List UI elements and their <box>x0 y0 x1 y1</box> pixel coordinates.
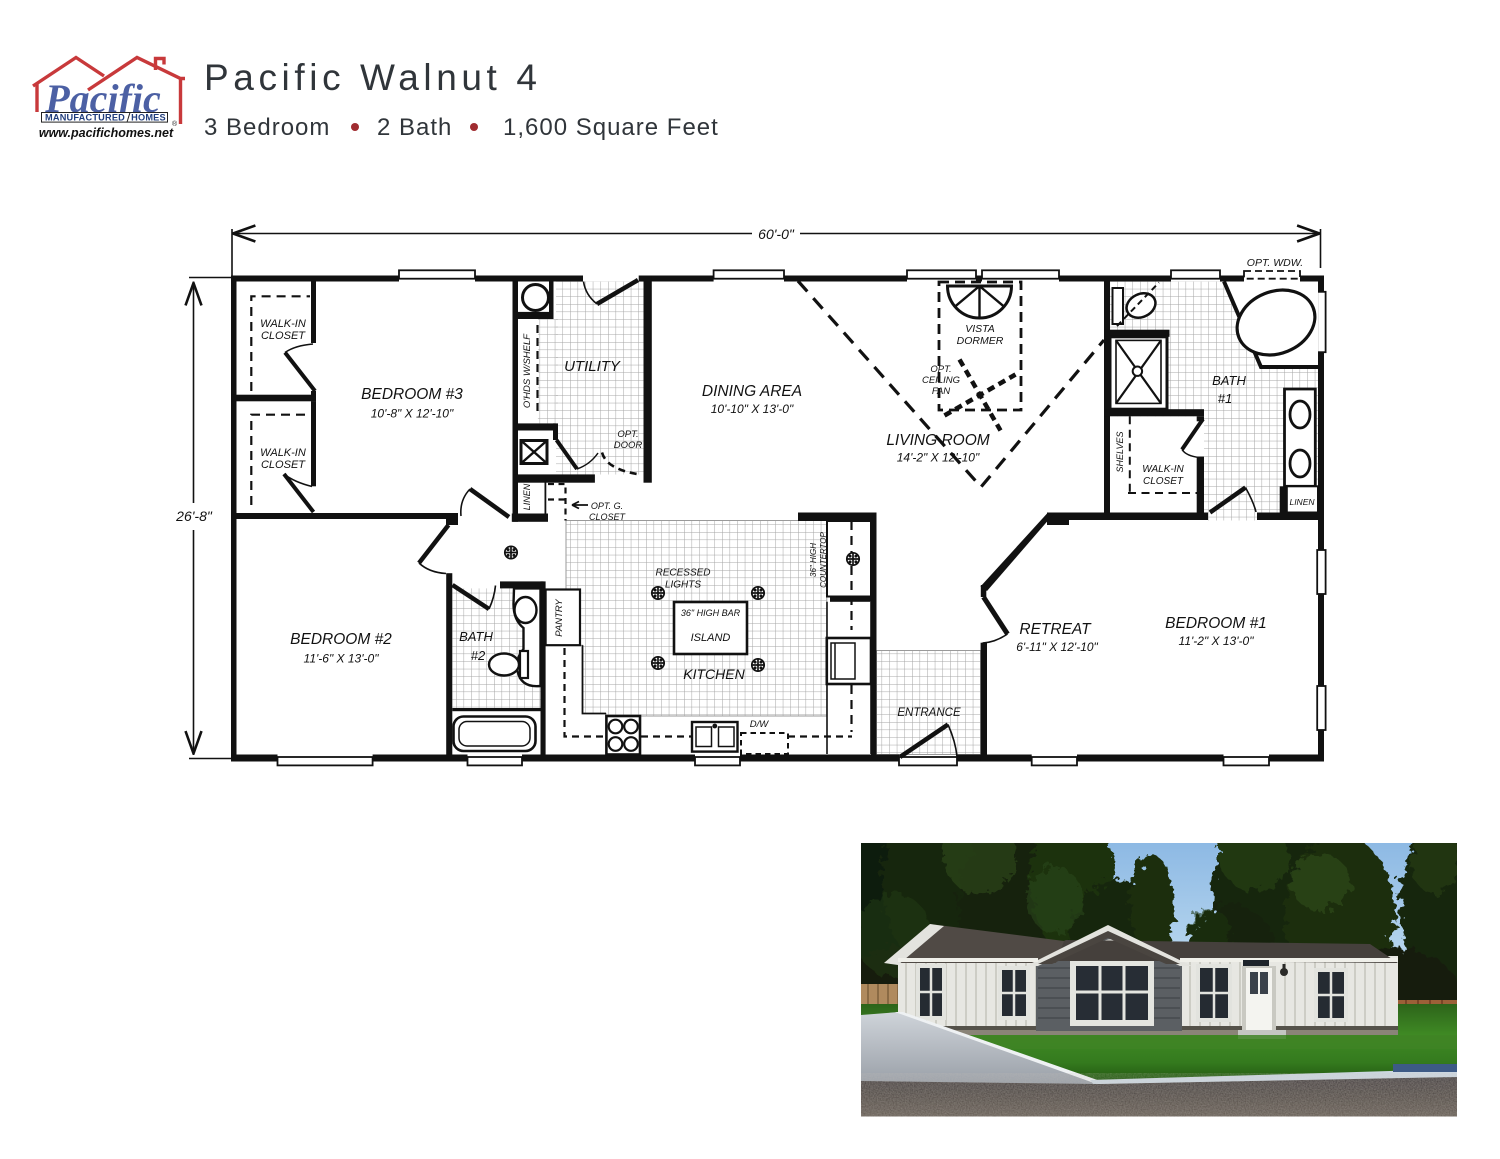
svg-text:DINING AREA: DINING AREA <box>702 383 802 400</box>
svg-text:LINEN: LINEN <box>1289 497 1315 507</box>
svg-text:BEDROOM #2: BEDROOM #2 <box>290 631 392 648</box>
svg-text:#2: #2 <box>471 648 486 663</box>
svg-text:36" HIGH BAR: 36" HIGH BAR <box>681 608 741 618</box>
svg-text:14'-2" X 12'-10": 14'-2" X 12'-10" <box>897 451 980 465</box>
svg-text:www.pacifichomes.net: www.pacifichomes.net <box>39 126 174 140</box>
svg-text:10'-8" X 12'-10": 10'-8" X 12'-10" <box>371 407 454 421</box>
svg-text:MANUFACTURED: MANUFACTURED <box>45 113 125 123</box>
svg-text:O'HDS W/SHELF: O'HDS W/SHELF <box>522 333 533 408</box>
svg-text:3 Bedroom: 3 Bedroom <box>204 114 330 141</box>
svg-text:60'-0": 60'-0" <box>758 226 795 242</box>
svg-text:11'-2" X 13'-0": 11'-2" X 13'-0" <box>1179 634 1255 648</box>
svg-text:RETREAT: RETREAT <box>1019 621 1092 638</box>
svg-text:CLOSET: CLOSET <box>261 330 306 342</box>
svg-text:ENTRANCE: ENTRANCE <box>897 707 961 719</box>
svg-text:CLOSET: CLOSET <box>261 459 306 471</box>
svg-text:FAN: FAN <box>932 386 950 397</box>
svg-text:OPT. G.: OPT. G. <box>591 501 623 511</box>
svg-text:BEDROOM #1: BEDROOM #1 <box>1165 615 1267 632</box>
svg-text:KITCHEN: KITCHEN <box>683 666 745 682</box>
svg-text:CLOSET: CLOSET <box>1143 476 1184 487</box>
svg-text:ISLAND: ISLAND <box>691 632 731 644</box>
svg-text:#1: #1 <box>1218 391 1232 406</box>
svg-text:WALK-IN: WALK-IN <box>1142 464 1184 475</box>
svg-text:DOOR: DOOR <box>614 440 643 451</box>
svg-text:CEILING: CEILING <box>922 375 960 386</box>
svg-text:WALK-IN: WALK-IN <box>260 318 306 330</box>
svg-text:1,600 Square Feet: 1,600 Square Feet <box>503 114 719 141</box>
svg-text:CLOSET: CLOSET <box>589 512 627 522</box>
svg-text:11'-6" X 13'-0": 11'-6" X 13'-0" <box>304 652 380 666</box>
svg-text:36" HIGH: 36" HIGH <box>809 543 818 577</box>
svg-text:6'-11" X 12'-10": 6'-11" X 12'-10" <box>1016 640 1098 654</box>
svg-text:HOMES: HOMES <box>131 113 166 123</box>
svg-text:Pacific Walnut 4: Pacific Walnut 4 <box>204 57 542 98</box>
svg-text:LIGHTS: LIGHTS <box>665 580 701 591</box>
svg-text:SHELVES: SHELVES <box>1115 431 1125 472</box>
svg-text:DORMER: DORMER <box>957 335 1004 347</box>
svg-text:OPT.: OPT. <box>930 364 951 375</box>
svg-text:OPT. WDW.: OPT. WDW. <box>1247 257 1303 269</box>
svg-text:VISTA: VISTA <box>965 323 995 335</box>
svg-text:LINEN: LINEN <box>522 483 532 510</box>
svg-text:PANTRY: PANTRY <box>554 599 565 637</box>
svg-text:10'-10" X 13'-0": 10'-10" X 13'-0" <box>711 402 794 416</box>
svg-text:26'-8": 26'-8" <box>175 508 213 524</box>
svg-text:OPT.: OPT. <box>617 429 638 440</box>
svg-text:COUNTERTOP: COUNTERTOP <box>819 531 828 587</box>
svg-text:UTILITY: UTILITY <box>564 358 621 375</box>
svg-text:WALK-IN: WALK-IN <box>260 447 306 459</box>
svg-text:RECESSED: RECESSED <box>655 568 710 579</box>
svg-text:BATH: BATH <box>1212 373 1246 388</box>
svg-text:2 Bath: 2 Bath <box>377 114 452 141</box>
svg-text:BATH: BATH <box>459 629 493 644</box>
svg-text:BEDROOM #3: BEDROOM #3 <box>361 386 463 403</box>
svg-text:D/W: D/W <box>750 719 770 730</box>
svg-text:LIVING ROOM: LIVING ROOM <box>886 432 989 449</box>
